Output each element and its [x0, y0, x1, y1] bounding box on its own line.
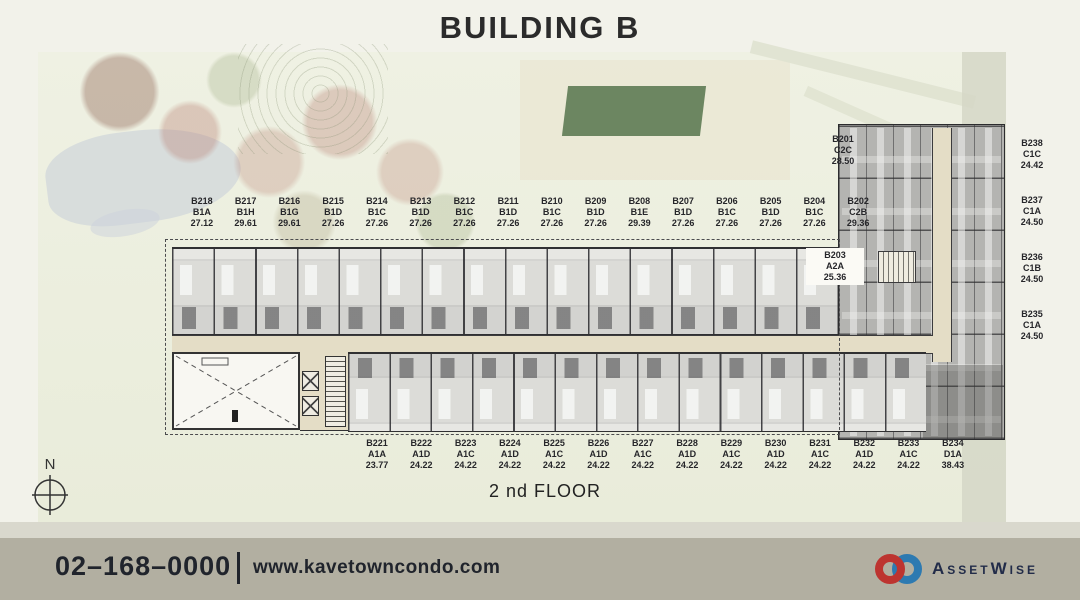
unit-id: B215: [311, 196, 355, 207]
unit-id: B229: [709, 438, 753, 449]
unit-area: 29.61: [268, 218, 312, 229]
unit-type: C1B: [1010, 263, 1054, 274]
footer-divider: [237, 552, 240, 584]
unit-type: B1D: [574, 207, 618, 218]
unit-id: B224: [488, 438, 532, 449]
unit-type: C1C: [1010, 149, 1054, 160]
unit-area: 24.22: [754, 460, 798, 471]
unit-label: B231 A1C 24.22: [798, 438, 842, 474]
unit-label: B229 A1C 24.22: [709, 438, 753, 474]
unit-label: B235 C1A 24.50: [1010, 309, 1054, 342]
unit-area: 24.22: [887, 460, 931, 471]
unit-id: B233: [887, 438, 931, 449]
unit-area: 27.12: [180, 218, 224, 229]
unit-id: B210: [530, 196, 574, 207]
concentric-garden-rings: [238, 44, 388, 154]
unit-label: B221 A1A 23.77: [355, 438, 399, 474]
brand-name: AssetWise: [932, 559, 1038, 579]
page-title: BUILDING B: [0, 10, 1080, 46]
unit-id: B230: [754, 438, 798, 449]
unit-id: B217: [224, 196, 268, 207]
unit-label: B230 A1D 24.22: [754, 438, 798, 474]
unit-id: B235: [1010, 309, 1054, 320]
unit-area: 24.22: [798, 460, 842, 471]
unit-id: B208: [618, 196, 662, 207]
unit-id: B214: [355, 196, 399, 207]
unit-id: B206: [705, 196, 749, 207]
unit-label: B225 A1C 24.22: [532, 438, 576, 474]
unit-area: 24.22: [842, 460, 886, 471]
unit-type: A1C: [532, 449, 576, 460]
unit-label: B205 B1D 27.26: [749, 196, 793, 232]
unit-area: 24.22: [399, 460, 443, 471]
unit-id: B225: [532, 438, 576, 449]
unit-label: B228 A1D 24.22: [665, 438, 709, 474]
unit-label: B215 B1D 27.26: [311, 196, 355, 232]
elevator: [302, 396, 319, 416]
unit-label: B236 C1B 24.50: [1010, 252, 1054, 285]
unit-area: 28.50: [817, 156, 869, 167]
unit-type: B1D: [399, 207, 443, 218]
unit-type: B1C: [443, 207, 487, 218]
unit-id: B222: [399, 438, 443, 449]
unit-id: B238: [1010, 138, 1054, 149]
unit-area: 24.22: [709, 460, 753, 471]
unit-label: B207 B1D 27.26: [661, 196, 705, 232]
tower-dark-units: [923, 365, 1003, 438]
unit-label: B232 A1D 24.22: [842, 438, 886, 474]
unit-type: C2C: [817, 145, 869, 156]
unit-label: B204 B1C 27.26: [793, 196, 837, 232]
unit-type: B1G: [268, 207, 312, 218]
unit-label: B222 A1D 24.22: [399, 438, 443, 474]
unit-type: A1D: [576, 449, 620, 460]
unit-label: B233 A1C 24.22: [887, 438, 931, 474]
unit-id: B204: [793, 196, 837, 207]
unit-labels-right-column: B238 C1C 24.42 B237 C1A 24.50 B236 C1B 2…: [1010, 138, 1068, 342]
unit-area: 38.43: [931, 460, 975, 471]
unit-type: A1C: [887, 449, 931, 460]
unit-id: B207: [661, 196, 705, 207]
unit-type: C1A: [1010, 206, 1054, 217]
unit-type: B1C: [355, 207, 399, 218]
unit-labels-bottom-row: B221 A1A 23.77 B222 A1D 24.22 B223 A1C 2…: [355, 438, 975, 474]
unit-id: B211: [486, 196, 530, 207]
unit-type: B1C: [793, 207, 837, 218]
unit-type: B1D: [749, 207, 793, 218]
elevator: [302, 371, 319, 391]
unit-area: 27.26: [530, 218, 574, 229]
unit-area: 24.22: [444, 460, 488, 471]
unit-area: 29.39: [618, 218, 662, 229]
website-url: www.kavetowncondo.com: [253, 557, 500, 579]
unit-area: 27.26: [574, 218, 618, 229]
unit-id: B202: [836, 196, 880, 207]
unit-area: 27.26: [355, 218, 399, 229]
north-compass: N: [28, 456, 72, 522]
unit-row-bottom-graphic: [348, 352, 926, 432]
unit-type: B1H: [224, 207, 268, 218]
footer-top-strip: [0, 522, 1080, 538]
unit-label: B223 A1C 24.22: [444, 438, 488, 474]
unit-id: B223: [444, 438, 488, 449]
unit-label: B210 B1C 27.26: [530, 196, 574, 232]
unit-type: D1A: [931, 449, 975, 460]
unit-area: 27.26: [399, 218, 443, 229]
unit-label: B237 C1A 24.50: [1010, 195, 1054, 228]
void-cross-marks: [174, 354, 298, 428]
unit-area: 29.61: [224, 218, 268, 229]
unit-id: B203: [806, 250, 864, 261]
unit-area: 27.26: [749, 218, 793, 229]
unit-type: C2B: [836, 207, 880, 218]
unit-id: B227: [621, 438, 665, 449]
unit-area: 27.26: [661, 218, 705, 229]
unit-label-b203: B203 A2A 25.36: [806, 248, 864, 285]
unit-type: B1A: [180, 207, 224, 218]
unit-label: B234 D1A 38.43: [931, 438, 975, 474]
tower-stairs: [878, 251, 916, 283]
unit-label: B213 B1D 27.26: [399, 196, 443, 232]
unit-area: 24.50: [1010, 274, 1054, 285]
logo-red-ring-icon: [875, 554, 905, 584]
unit-label: B216 B1G 29.61: [268, 196, 312, 232]
compass-icon: [28, 473, 72, 517]
unit-id: B205: [749, 196, 793, 207]
unit-area: 24.22: [665, 460, 709, 471]
unit-type: A1D: [488, 449, 532, 460]
pool-shape: [562, 86, 706, 136]
unit-area: 24.50: [1010, 331, 1054, 342]
unit-label: B238 C1C 24.42: [1010, 138, 1054, 171]
unit-area: 24.42: [1010, 160, 1054, 171]
unit-id: B209: [574, 196, 618, 207]
unit-area: 23.77: [355, 460, 399, 471]
bathroom-marks: [172, 307, 838, 329]
unit-label: B227 A1C 24.22: [621, 438, 665, 474]
unit-type: A1D: [842, 449, 886, 460]
bathroom-marks: [348, 358, 926, 378]
unit-type: A1C: [798, 449, 842, 460]
unit-area: 24.22: [532, 460, 576, 471]
north-label: N: [28, 456, 72, 473]
unit-area: 27.26: [311, 218, 355, 229]
unit-id: B221: [355, 438, 399, 449]
unit-label: B202 C2B 29.36: [836, 196, 880, 232]
unit-type: A1A: [355, 449, 399, 460]
unit-area: 29.36: [836, 218, 880, 229]
unit-id: B231: [798, 438, 842, 449]
unit-type: B1C: [530, 207, 574, 218]
unit-area: 24.22: [621, 460, 665, 471]
unit-label: B224 A1D 24.22: [488, 438, 532, 474]
brochure-page: BUILDING B: [0, 0, 1080, 600]
unit-type: A1C: [709, 449, 753, 460]
tower-corridor: [932, 128, 952, 362]
unit-row-top-graphic: [172, 247, 838, 335]
unit-type: A1D: [665, 449, 709, 460]
unit-id: B213: [399, 196, 443, 207]
unit-type: B1D: [486, 207, 530, 218]
unit-label: B226 A1D 24.22: [576, 438, 620, 474]
unit-type: A1C: [444, 449, 488, 460]
unit-id: B232: [842, 438, 886, 449]
unit-type: B1E: [618, 207, 662, 218]
bed-marks: [348, 389, 926, 419]
unit-label: B214 B1C 27.26: [355, 196, 399, 232]
unit-type: B1C: [705, 207, 749, 218]
unit-area: 27.26: [793, 218, 837, 229]
void-room: [172, 352, 300, 430]
unit-area: 25.36: [806, 272, 864, 283]
unit-label: B209 B1D 27.26: [574, 196, 618, 232]
unit-area: 24.22: [488, 460, 532, 471]
unit-type: B1D: [661, 207, 705, 218]
unit-area: 24.22: [576, 460, 620, 471]
unit-area: 27.26: [486, 218, 530, 229]
unit-label: B212 B1C 27.26: [443, 196, 487, 232]
unit-id: B228: [665, 438, 709, 449]
unit-labels-top-row: B218 B1A 27.12 B217 B1H 29.61 B216 B1G 2…: [180, 196, 880, 232]
unit-label: B218 B1A 27.12: [180, 196, 224, 232]
bed-marks: [172, 265, 838, 295]
unit-label: B206 B1C 27.26: [705, 196, 749, 232]
unit-type: A1D: [754, 449, 798, 460]
unit-label: B208 B1E 29.39: [618, 196, 662, 232]
unit-label: B211 B1D 27.26: [486, 196, 530, 232]
unit-label-b201: B201 C2C 28.50: [817, 134, 869, 167]
floor-label: 2 nd FLOOR: [440, 481, 650, 502]
unit-id: B212: [443, 196, 487, 207]
unit-id: B236: [1010, 252, 1054, 263]
assetwise-logo: AssetWise: [875, 550, 1038, 588]
unit-type: C1A: [1010, 320, 1054, 331]
stairs: [325, 356, 346, 427]
unit-id: B218: [180, 196, 224, 207]
footer-bar: 02–168–0000 www.kavetowncondo.com AssetW…: [0, 538, 1080, 600]
unit-area: 27.26: [705, 218, 749, 229]
unit-area: 24.50: [1010, 217, 1054, 228]
unit-id: B237: [1010, 195, 1054, 206]
unit-type: A2A: [806, 261, 864, 272]
unit-type: B1D: [311, 207, 355, 218]
unit-id: B226: [576, 438, 620, 449]
unit-id: B201: [817, 134, 869, 145]
unit-id: B234: [931, 438, 975, 449]
unit-id: B216: [268, 196, 312, 207]
unit-type: A1C: [621, 449, 665, 460]
unit-label: B217 B1H 29.61: [224, 196, 268, 232]
unit-area: 27.26: [443, 218, 487, 229]
phone-number: 02–168–0000: [55, 551, 231, 582]
unit-type: A1D: [399, 449, 443, 460]
